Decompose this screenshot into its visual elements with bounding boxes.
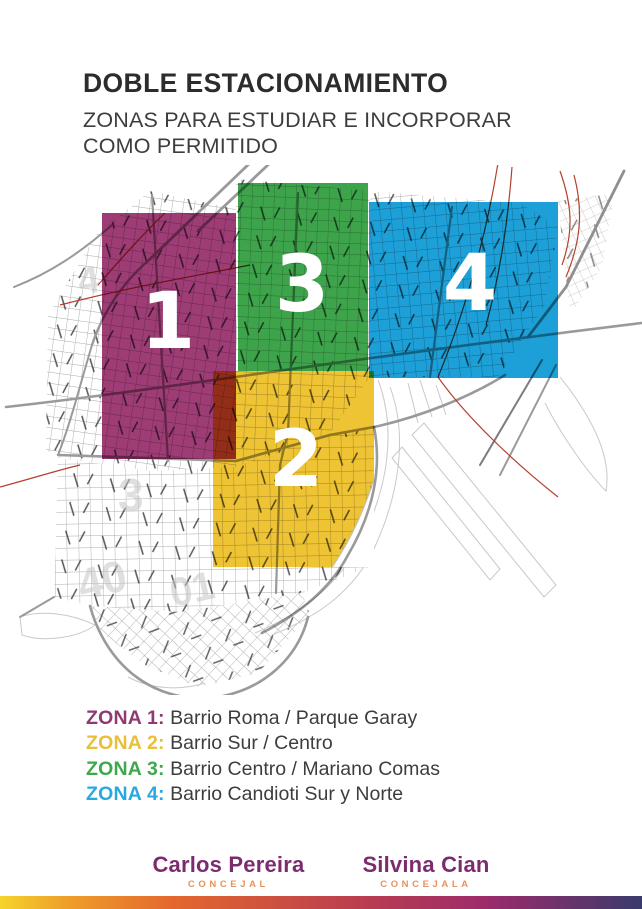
legend-value-zone-2: Barrio Sur / Centro: [170, 732, 333, 754]
official-silvina-cian: Silvina Cian CONCEJALA: [362, 852, 489, 890]
footer-officials: Carlos Pereira CONCEJAL Silvina Cian CON…: [0, 852, 642, 890]
legend-item-zone-1: ZONA 1: Barrio Roma / Parque Garay: [86, 706, 566, 731]
zone-4-number: 4: [443, 239, 497, 329]
zones-legend: ZONA 1: Barrio Roma / Parque Garay ZONA …: [86, 706, 566, 808]
legend-item-zone-2: ZONA 2: Barrio Sur / Centro: [86, 731, 566, 756]
page-subtitle: ZONAS PARA ESTUDIAR E INCORPORARCOMO PER…: [83, 107, 603, 159]
legend-label-zone-2: ZONA 2:: [86, 732, 165, 754]
legend-label-zone-4: ZONA 4:: [86, 783, 165, 805]
legend-item-zone-3: ZONA 3: Barrio Centro / Mariano Comas: [86, 757, 566, 782]
city-map: 4 3 40 01: [0, 165, 642, 695]
subtitle-line-2: COMO PERMITIDO: [83, 134, 278, 158]
subtitle-line-1: ZONAS PARA ESTUDIAR E INCORPORAR: [83, 108, 512, 132]
zone-3-number: 3: [275, 240, 329, 330]
zone-2-number: 2: [269, 415, 323, 505]
legend-value-zone-1: Barrio Roma / Parque Garay: [170, 707, 417, 729]
official-name: Silvina Cian: [362, 852, 489, 878]
watermark-01: 01: [166, 563, 219, 615]
legend-value-zone-3: Barrio Centro / Mariano Comas: [170, 758, 440, 780]
official-role: CONCEJAL: [152, 879, 304, 890]
gradient-bar: [0, 896, 642, 909]
official-name: Carlos Pereira: [152, 852, 304, 878]
page-title: DOBLE ESTACIONAMIENTO: [83, 70, 603, 98]
official-carlos-pereira: Carlos Pereira CONCEJAL: [152, 852, 304, 890]
watermark-3: 3: [118, 469, 144, 521]
official-role: CONCEJALA: [362, 879, 489, 890]
legend-label-zone-1: ZONA 1:: [86, 707, 165, 729]
legend-value-zone-4: Barrio Candioti Sur y Norte: [170, 783, 403, 805]
poster-page: DOBLE ESTACIONAMIENTO ZONAS PARA ESTUDIA…: [0, 0, 642, 909]
header: DOBLE ESTACIONAMIENTO ZONAS PARA ESTUDIA…: [83, 70, 603, 159]
zone-1-number: 1: [141, 277, 195, 367]
legend-label-zone-3: ZONA 3:: [86, 758, 165, 780]
legend-item-zone-4: ZONA 4: Barrio Candioti Sur y Norte: [86, 782, 566, 807]
